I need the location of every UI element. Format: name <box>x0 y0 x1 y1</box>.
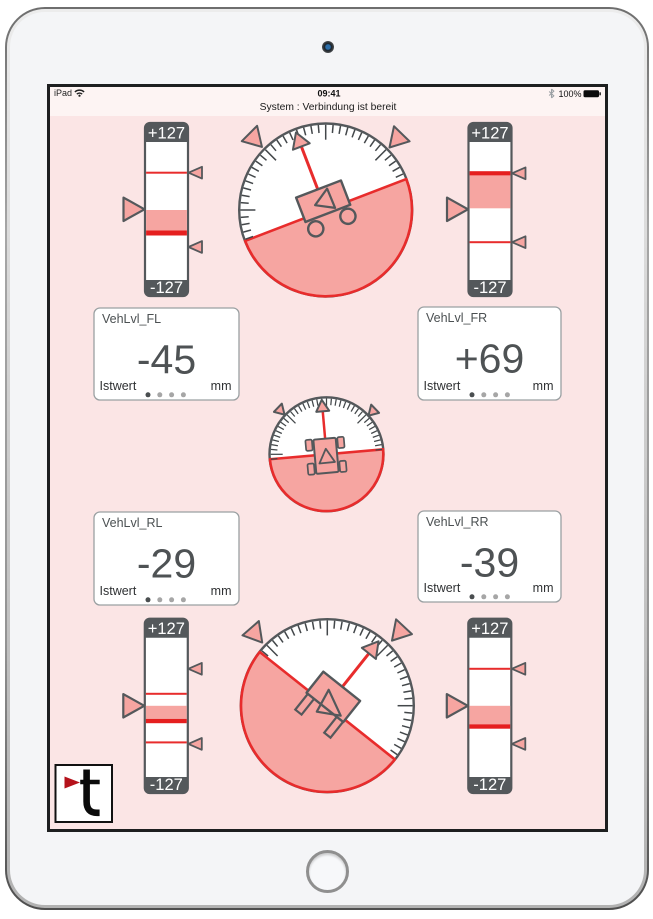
svg-text:Istwert: Istwert <box>100 379 137 393</box>
svg-text:-45: -45 <box>137 337 196 383</box>
svg-text:VehLvl_RR: VehLvl_RR <box>426 515 489 529</box>
svg-text:-127: -127 <box>150 776 183 794</box>
svg-text:VehLvl_FR: VehLvl_FR <box>426 311 487 325</box>
svg-text:mm: mm <box>211 584 232 598</box>
svg-text:+127: +127 <box>148 125 185 143</box>
svg-text:Istwert: Istwert <box>100 584 137 598</box>
svg-text:mm: mm <box>533 581 554 595</box>
svg-text:System : Verbindung ist bereit: System : Verbindung ist bereit <box>260 102 397 113</box>
svg-text:iPad: iPad <box>54 88 72 98</box>
svg-text:VehLvl_RL: VehLvl_RL <box>102 516 163 530</box>
svg-text:Istwert: Istwert <box>424 379 461 393</box>
svg-text:-29: -29 <box>137 541 196 587</box>
svg-text:+127: +127 <box>148 620 185 638</box>
svg-text:-39: -39 <box>460 540 519 586</box>
svg-text:-127: -127 <box>150 279 183 297</box>
svg-text:mm: mm <box>533 379 554 393</box>
svg-text:100%: 100% <box>558 89 581 99</box>
svg-text:-127: -127 <box>473 776 506 794</box>
svg-text:mm: mm <box>211 379 232 393</box>
svg-text:+127: +127 <box>471 125 508 143</box>
svg-text:+69: +69 <box>455 336 525 382</box>
svg-text:09:41: 09:41 <box>317 89 340 99</box>
svg-text:VehLvl_FL: VehLvl_FL <box>102 312 161 326</box>
svg-text:-127: -127 <box>473 279 506 297</box>
svg-text:Istwert: Istwert <box>424 581 461 595</box>
svg-text:+127: +127 <box>471 620 508 638</box>
